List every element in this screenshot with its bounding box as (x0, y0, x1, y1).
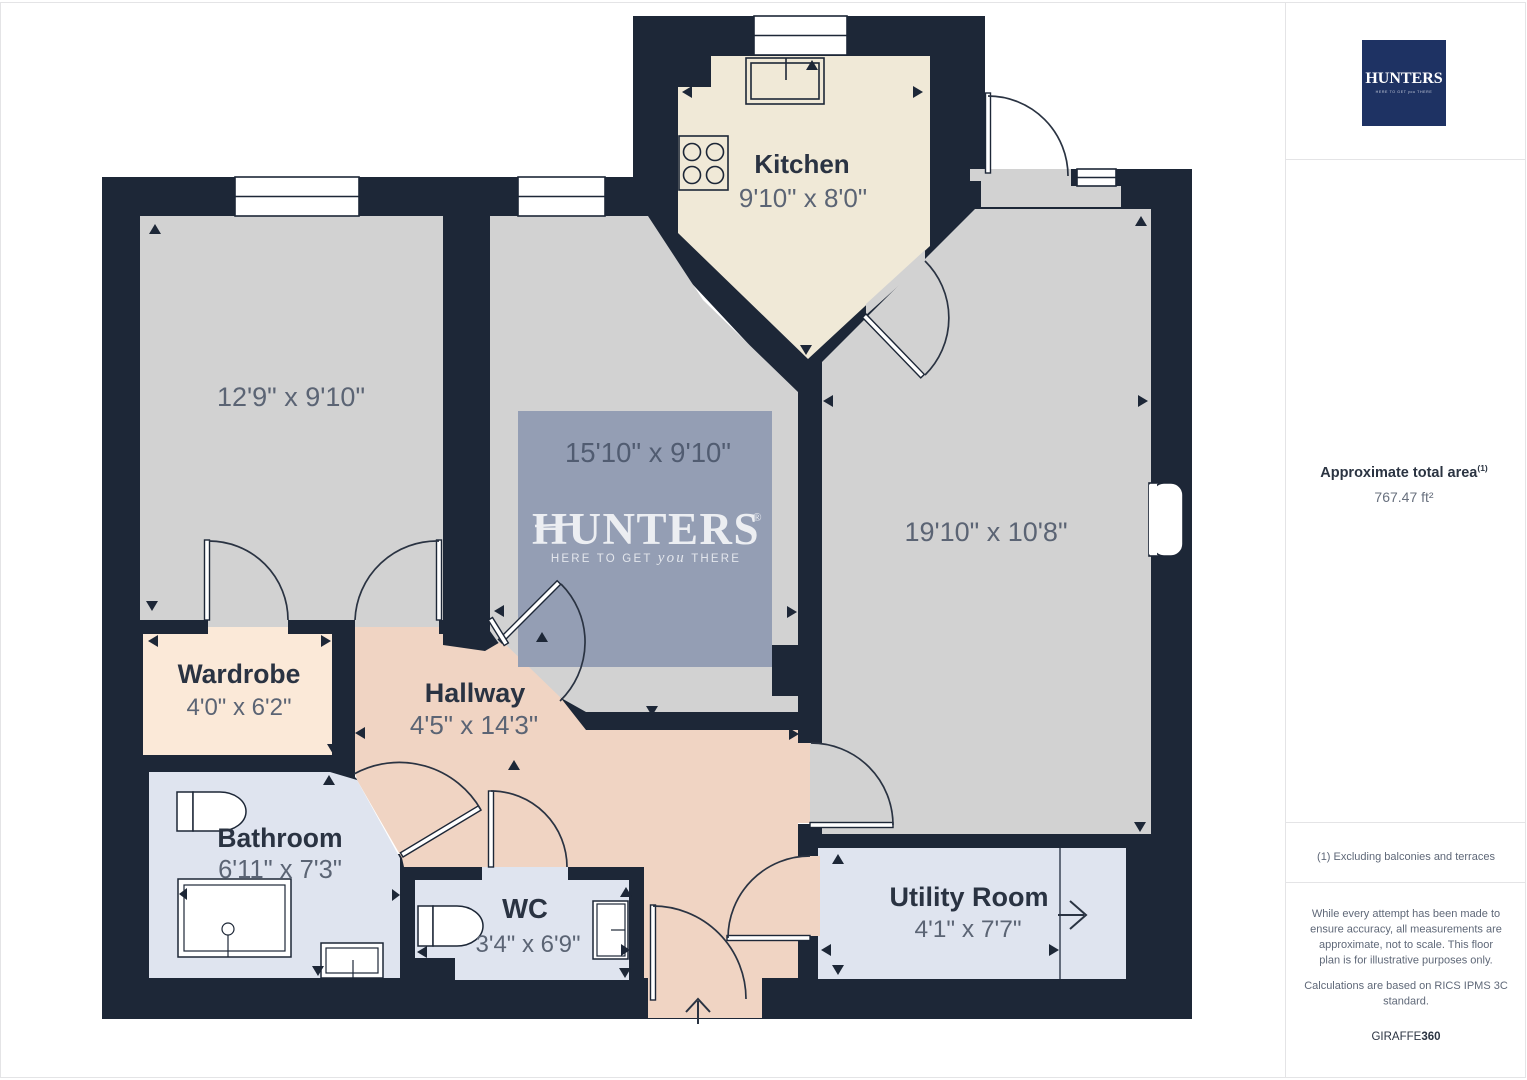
svg-text:standard.: standard. (1383, 996, 1429, 1008)
svg-text:12'9" x 9'10": 12'9" x 9'10" (217, 382, 365, 412)
svg-text:Calculations are based on RICS: Calculations are based on RICS IPMS 3C (1304, 980, 1508, 992)
svg-text:4'0" x 6'2": 4'0" x 6'2" (187, 694, 292, 721)
svg-text:9'10" x 8'0": 9'10" x 8'0" (739, 183, 867, 213)
svg-text:6'11" x 7'3": 6'11" x 7'3" (218, 856, 342, 884)
svg-text:HERE TO GET you THERE: HERE TO GET you THERE (551, 550, 741, 566)
svg-text:4'1" x 7'7": 4'1" x 7'7" (914, 916, 1021, 943)
svg-text:Hallway: Hallway (425, 678, 526, 708)
svg-text:767.47 ft²: 767.47 ft² (1374, 489, 1433, 505)
svg-text:plan is for illustrative purpo: plan is for illustrative purposes only. (1319, 955, 1492, 967)
svg-text:Utility Room: Utility Room (890, 882, 1049, 912)
svg-text:4'5" x 14'3": 4'5" x 14'3" (410, 710, 538, 740)
svg-text:WC: WC (502, 893, 548, 924)
svg-text:Wardrobe: Wardrobe (178, 659, 301, 689)
svg-text:approximate, not to scale. Thi: approximate, not to scale. This floor (1319, 939, 1493, 951)
svg-text:HUNTERS: HUNTERS (1365, 70, 1442, 87)
svg-text:Approximate total area(1): Approximate total area(1) (1320, 463, 1488, 481)
svg-text:3'4" x 6'9": 3'4" x 6'9" (476, 931, 581, 958)
svg-text:Kitchen: Kitchen (754, 149, 849, 179)
svg-text:15'10" x 9'10": 15'10" x 9'10" (565, 437, 731, 468)
svg-text:®: ® (752, 510, 761, 524)
svg-text:While every attempt has been m: While every attempt has been made to (1312, 908, 1500, 920)
svg-text:ensure accuracy, all measureme: ensure accuracy, all measurements are (1310, 924, 1502, 936)
svg-text:19'10" x 10'8": 19'10" x 10'8" (904, 517, 1067, 547)
svg-text:GIRAFFE360: GIRAFFE360 (1371, 1031, 1440, 1043)
svg-text:HERE TO GET you THERE: HERE TO GET you THERE (1376, 90, 1433, 94)
svg-text:(1) Excluding balconies and te: (1) Excluding balconies and terraces (1317, 851, 1495, 863)
svg-text:Bathroom: Bathroom (217, 823, 342, 853)
svg-text:HUNTERS: HUNTERS (532, 504, 760, 554)
